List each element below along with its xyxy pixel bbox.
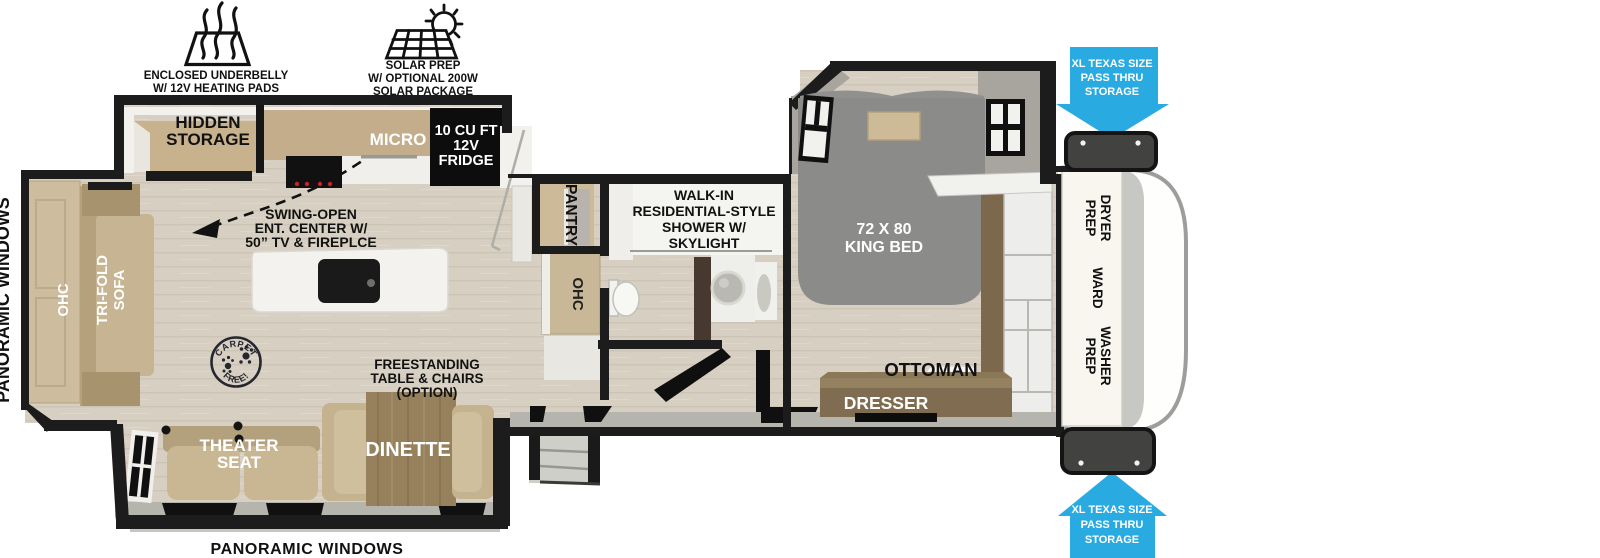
svg-text:TABLE & CHAIRS: TABLE & CHAIRS	[371, 371, 484, 386]
svg-text:KING BED: KING BED	[845, 239, 923, 256]
svg-text:STORAGE: STORAGE	[1085, 86, 1139, 98]
svg-text:W/ 12V HEATING PADS: W/ 12V HEATING PADS	[153, 83, 279, 95]
svg-text:DRESSER: DRESSER	[844, 393, 929, 413]
svg-text:PREP: PREP	[1083, 338, 1098, 375]
svg-text:DINETTE: DINETTE	[365, 439, 451, 461]
svg-text:STORAGE: STORAGE	[166, 130, 250, 149]
svg-text:W/ OPTIONAL 200W: W/ OPTIONAL 200W	[368, 73, 478, 85]
svg-text:ENCLOSED UNDERBELLY: ENCLOSED UNDERBELLY	[144, 70, 289, 82]
svg-text:XL TEXAS SIZE: XL TEXAS SIZE	[1071, 504, 1152, 516]
svg-text:SEAT: SEAT	[217, 453, 262, 472]
svg-text:OTTOMAN: OTTOMAN	[884, 359, 977, 380]
svg-text:WASHER: WASHER	[1098, 326, 1113, 386]
svg-text:PREP: PREP	[1083, 200, 1098, 237]
svg-text:PANORAMIC WINDOWS: PANORAMIC WINDOWS	[0, 197, 13, 403]
svg-text:RESIDENTIAL-STYLE: RESIDENTIAL-STYLE	[632, 203, 775, 219]
svg-text:10 CU FT: 10 CU FT	[435, 123, 498, 139]
svg-text:PANTRY: PANTRY	[562, 184, 579, 247]
svg-text:XL TEXAS SIZE: XL TEXAS SIZE	[1071, 58, 1152, 70]
svg-text:OHC: OHC	[55, 283, 72, 317]
svg-text:FREESTANDING: FREESTANDING	[374, 357, 480, 372]
svg-text:12V: 12V	[453, 138, 479, 154]
svg-text:50” TV & FIREPLCE: 50” TV & FIREPLCE	[245, 234, 376, 250]
svg-text:WALK-IN: WALK-IN	[674, 187, 734, 203]
svg-text:SOLAR PREP: SOLAR PREP	[386, 60, 461, 72]
svg-text:SHOWER W/: SHOWER W/	[662, 219, 746, 235]
svg-text:DRYER: DRYER	[1098, 195, 1113, 242]
svg-text:SOFA: SOFA	[111, 269, 128, 310]
svg-text:72 X 80: 72 X 80	[856, 221, 911, 238]
svg-text:PANORAMIC WINDOWS: PANORAMIC WINDOWS	[211, 541, 404, 558]
svg-text:PASS THRU: PASS THRU	[1081, 72, 1144, 84]
svg-text:WARD: WARD	[1090, 267, 1105, 308]
svg-text:FRIDGE: FRIDGE	[439, 153, 494, 169]
svg-text:TRI-FOLD: TRI-FOLD	[94, 255, 111, 325]
svg-text:OHC: OHC	[569, 277, 586, 311]
svg-text:STORAGE: STORAGE	[1085, 534, 1139, 546]
svg-text:(OPTION): (OPTION)	[397, 385, 458, 400]
svg-text:SKYLIGHT: SKYLIGHT	[669, 235, 740, 251]
svg-text:MICRO: MICRO	[370, 130, 427, 149]
svg-text:PASS THRU: PASS THRU	[1081, 519, 1144, 531]
